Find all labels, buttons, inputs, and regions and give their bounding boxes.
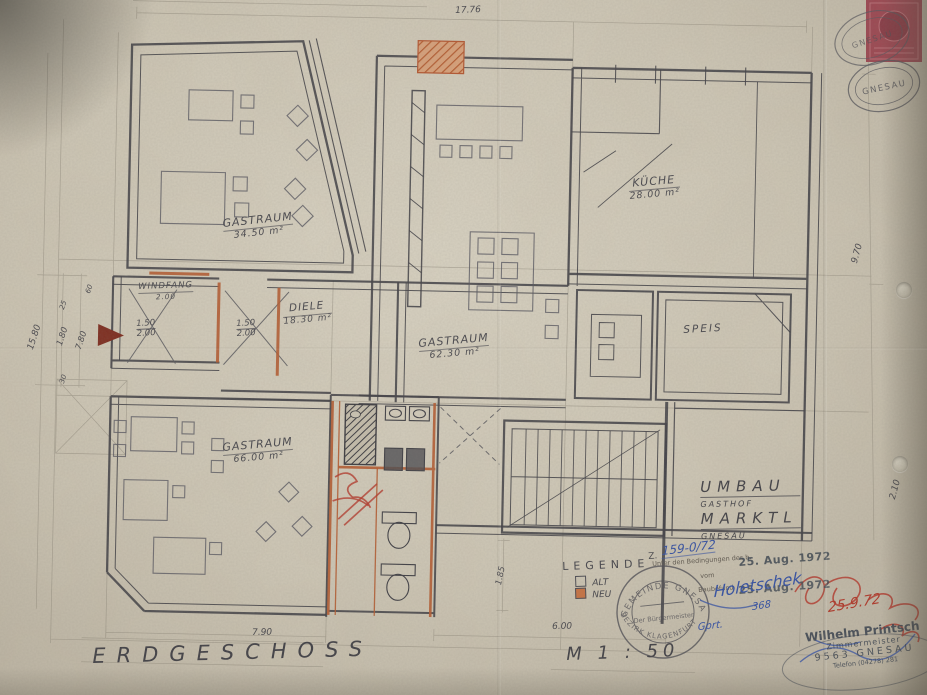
dim-bottom-right: 6.00 bbox=[552, 622, 572, 632]
project-line-umbau: UMBAU bbox=[700, 476, 800, 498]
project-line-marktl: MARKTL bbox=[701, 508, 801, 530]
neu-wall-top bbox=[418, 41, 465, 74]
room-label-kueche: KÜCHE 28.00 m² bbox=[628, 174, 681, 203]
revenue-stamp bbox=[866, 0, 922, 62]
legend-neu-swatch bbox=[575, 588, 586, 599]
blueprint-sheet: GEMEINDE GNESAU BEZIRK KLAGENFURT Der Bü… bbox=[0, 0, 927, 695]
project-title-block: UMBAU GASTHOF MARKTL GNESAU bbox=[700, 476, 801, 542]
room-label-speis: SPEIS bbox=[683, 322, 723, 336]
municipality-stamp-center-text: Der Bürgermeister bbox=[633, 611, 694, 625]
room-label-diele: DIELE 18.30 m² bbox=[282, 300, 332, 328]
dim-bottom-left: 7.90 bbox=[252, 628, 272, 638]
legend-neu-row: NEU bbox=[575, 587, 611, 601]
door-dim-1: 1.50 2.00 bbox=[136, 319, 156, 340]
legend-alt-swatch bbox=[575, 576, 586, 587]
dim-top-width: 17.76 bbox=[455, 5, 481, 16]
approval-text-2: vom bbox=[700, 571, 715, 580]
punch-hole-bottom bbox=[892, 456, 908, 472]
scale-label: M 1 : 50 bbox=[566, 640, 680, 665]
wc-fixtures bbox=[381, 406, 430, 601]
project-line-gnesau: GNESAU bbox=[701, 530, 801, 541]
oval-stamp-2: GNESAU bbox=[844, 54, 925, 118]
chimney-hatch bbox=[344, 404, 376, 465]
door-dim-2: 1.50 2.00 bbox=[236, 319, 256, 340]
punch-hole-top bbox=[896, 282, 912, 298]
red-pencil-note bbox=[332, 473, 383, 526]
project-line-gasthof: GASTHOF bbox=[700, 498, 800, 509]
room-label-windfang: WINDFANG 2.00 bbox=[138, 281, 194, 302]
